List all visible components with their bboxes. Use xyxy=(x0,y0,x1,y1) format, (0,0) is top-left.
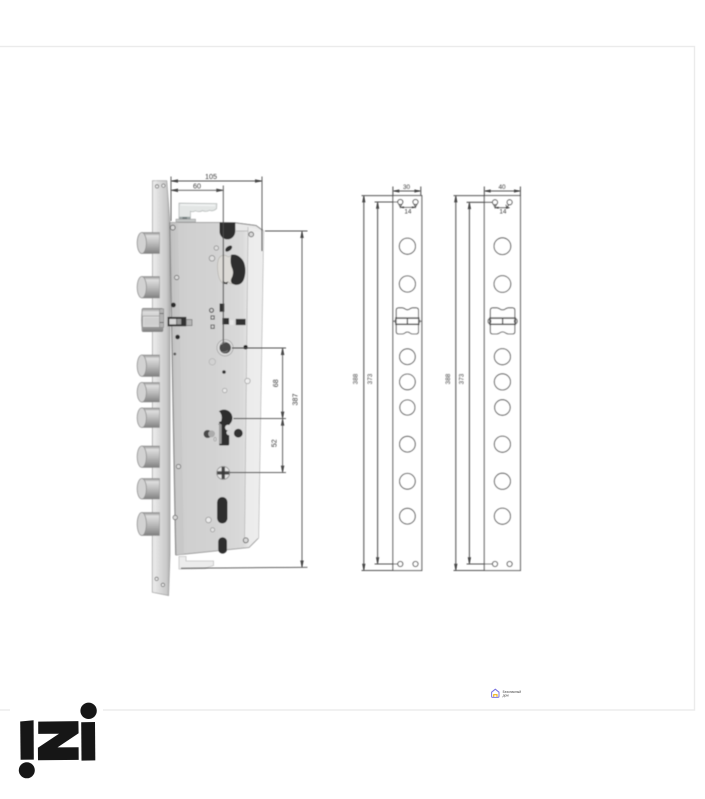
svg-text:388: 388 xyxy=(353,373,360,384)
svg-text:30: 30 xyxy=(403,184,411,191)
svg-text:373: 373 xyxy=(367,373,374,384)
svg-text:387: 387 xyxy=(291,394,300,406)
svg-text:105: 105 xyxy=(205,172,217,181)
svg-text:дом: дом xyxy=(503,694,510,698)
svg-text:68: 68 xyxy=(271,379,280,387)
svg-text:52: 52 xyxy=(270,439,279,447)
svg-text:40: 40 xyxy=(498,184,506,191)
svg-text:14: 14 xyxy=(499,209,507,216)
svg-text:373: 373 xyxy=(459,373,466,384)
svg-text:388: 388 xyxy=(445,373,452,384)
svg-text:60: 60 xyxy=(193,181,201,190)
svg-text:14: 14 xyxy=(404,209,412,216)
